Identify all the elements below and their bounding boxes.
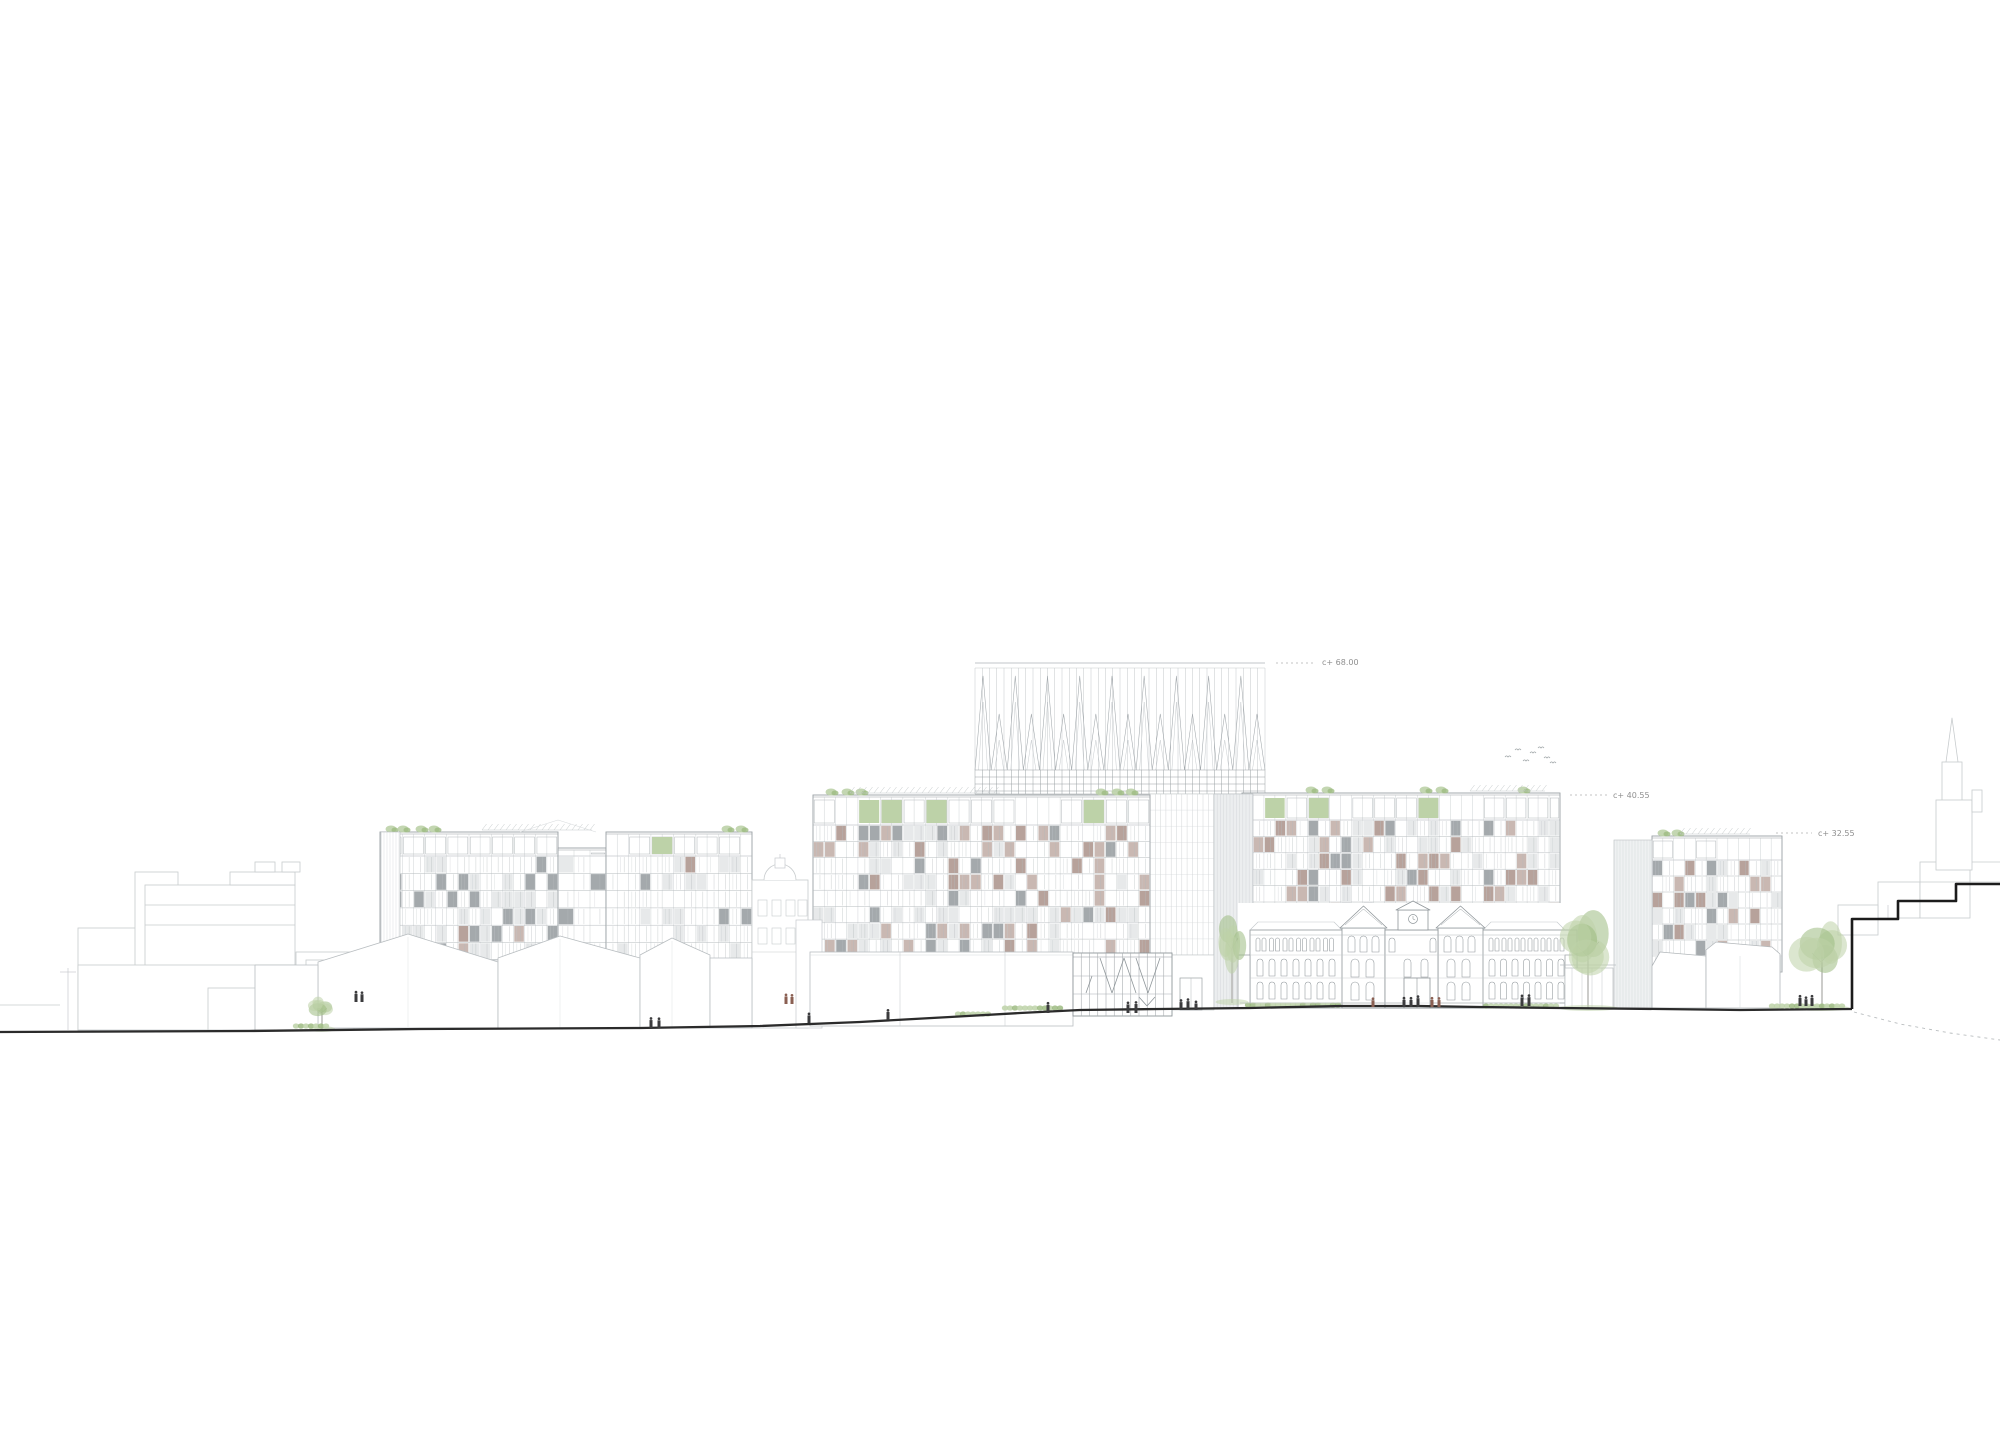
context-right-buildings: [1838, 862, 2000, 935]
street-elevation-svg: c+ 68.00 c+ 40.55 c+ 32.55: [0, 0, 2000, 1437]
block-a-right: [606, 826, 752, 960]
ground-dashed-line: [1854, 1012, 2000, 1040]
entrance-pavilion: [1073, 953, 1172, 1016]
church-spire: [1936, 718, 1982, 870]
block-b: [813, 789, 1150, 956]
level-annotation-68: c+ 68.00: [1322, 658, 1359, 667]
historic-school-building: [1238, 901, 1577, 1008]
birds: [1505, 747, 1556, 763]
elevation-drawing-canvas: c+ 68.00 c+ 40.55 c+ 32.55: [0, 0, 2000, 1437]
podium-walls: [810, 952, 1073, 1026]
level-annotation-40: c+ 40.55: [1613, 791, 1650, 800]
level-annotation-32: c+ 32.55: [1818, 829, 1855, 838]
